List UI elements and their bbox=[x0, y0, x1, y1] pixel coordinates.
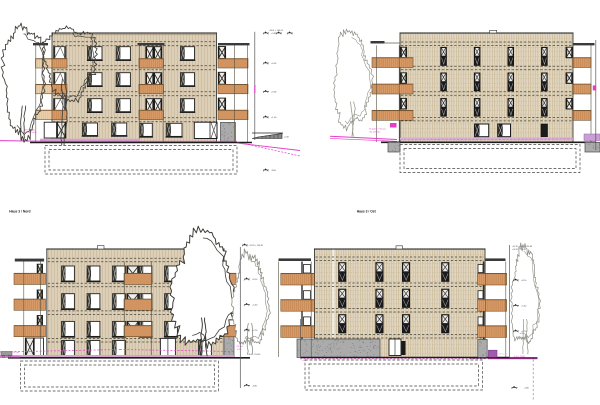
svg-text:+98.4 = 764.05: +98.4 = 764.05 bbox=[269, 30, 284, 32]
svg-text:+6.56: +6.56 bbox=[271, 63, 277, 65]
svg-text:+8.10: +8.10 bbox=[252, 279, 258, 281]
svg-text:OK Gel.: OK Gel. bbox=[13, 352, 20, 354]
svg-text:+3.28: +3.28 bbox=[271, 92, 277, 94]
svg-text:+5.40: +5.40 bbox=[252, 305, 258, 307]
svg-text:OK Rampe: OK Rampe bbox=[499, 354, 508, 356]
svg-text:Haus 3 / Ost: Haus 3 / Ost bbox=[357, 209, 377, 213]
svg-text:+8.10: +8.10 bbox=[521, 280, 527, 282]
svg-text:-0.50: -0.50 bbox=[302, 360, 306, 362]
svg-text:-2.80: -2.80 bbox=[252, 385, 258, 387]
svg-text:+2.70: +2.70 bbox=[521, 331, 527, 333]
svg-text:Vorgabe n. Planung: Vorgabe n. Planung bbox=[369, 127, 386, 130]
svg-text:Haus 3 / Nord: Haus 3 / Nord bbox=[9, 209, 30, 213]
svg-text:+5.40: +5.40 bbox=[521, 306, 527, 308]
svg-text:-0.50 = 753.30: -0.50 = 753.30 bbox=[514, 356, 526, 358]
svg-text:-3.06: -3.06 bbox=[271, 170, 277, 172]
svg-text:-2.80: -2.80 bbox=[524, 388, 530, 390]
svg-text:+2.70: +2.70 bbox=[252, 330, 258, 332]
svg-text:+11.32 = 765.80: +11.32 = 765.80 bbox=[249, 245, 264, 247]
svg-text:Obj. Gelände: Obj. Gelände bbox=[369, 131, 380, 133]
svg-text:+11.32 +Attika = 765.80: +11.32 +Attika = 765.80 bbox=[512, 245, 532, 248]
svg-text:+1.00: +1.00 bbox=[271, 117, 277, 119]
svg-text:851 + 754.50: 851 + 754.50 bbox=[249, 354, 262, 356]
